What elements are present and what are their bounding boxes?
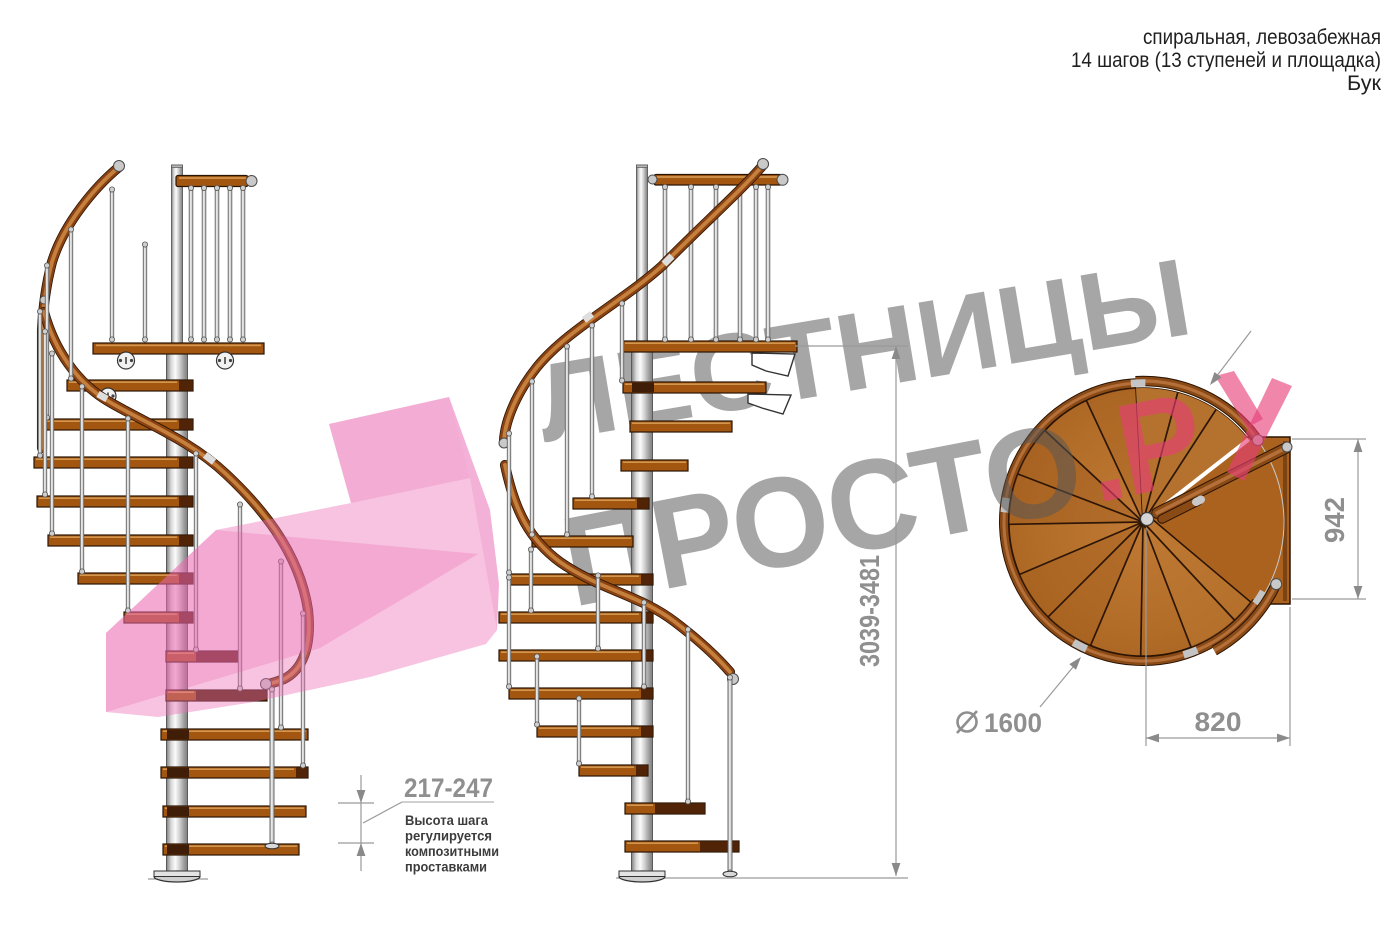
svg-text:217-247: 217-247 [404, 773, 493, 803]
svg-text:1600: 1600 [984, 708, 1042, 738]
svg-text:3039-3481: 3039-3481 [854, 555, 885, 667]
svg-text:Высота шага: Высота шага [405, 813, 488, 828]
svg-text:регулируется: регулируется [405, 829, 492, 844]
svg-text:композитными: композитными [405, 844, 499, 859]
svg-text:942: 942 [1319, 497, 1350, 543]
svg-text:820: 820 [1195, 707, 1242, 737]
svg-text:14 шагов (13 ступеней и площад: 14 шагов (13 ступеней и площадка) [1071, 49, 1381, 72]
svg-text:Бук: Бук [1347, 72, 1382, 95]
svg-text:спиральная, левозабежная: спиральная, левозабежная [1143, 26, 1381, 49]
svg-text:проставками: проставками [405, 860, 487, 875]
